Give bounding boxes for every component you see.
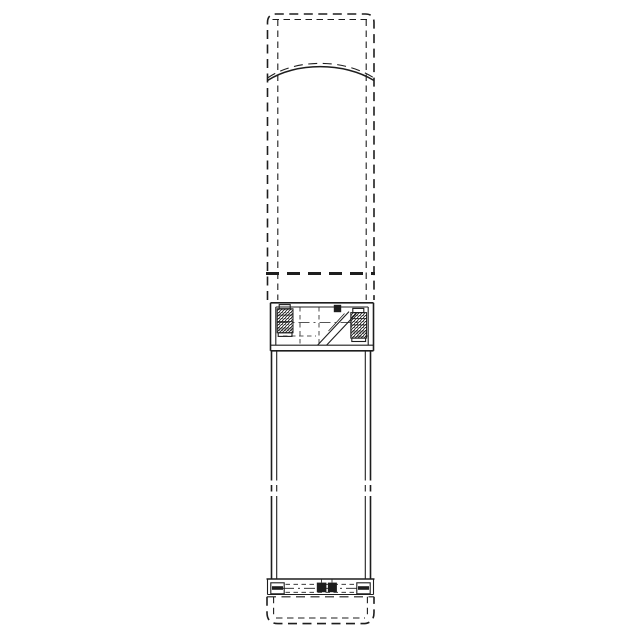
shoulder-arc-hidden xyxy=(268,63,375,78)
cable-guard-lower-edge xyxy=(318,312,350,346)
suction-interconnector-band xyxy=(267,579,375,595)
base-outer-outline xyxy=(267,597,374,624)
pump-outline-drawing xyxy=(0,0,640,640)
base-phantom-outline xyxy=(267,597,374,624)
cable-entry-block-right xyxy=(328,583,337,593)
pump-sleeve-body xyxy=(272,351,371,579)
shoulder-arc xyxy=(268,63,375,80)
upper-housing-phantom-outline xyxy=(268,14,375,300)
right-bolt-cap xyxy=(353,308,364,312)
right-clamp-bolt xyxy=(351,308,367,341)
shoulder-arc-solid xyxy=(268,67,375,81)
outer-phantom-outline xyxy=(268,14,375,300)
left-bolt-base xyxy=(278,333,292,337)
left-clamp-bolt xyxy=(277,305,293,337)
coupling-flange xyxy=(271,303,374,351)
cable-entry-block-left xyxy=(317,583,327,593)
drawing-canvas xyxy=(0,0,640,640)
cable-clamp-block xyxy=(334,305,341,312)
bracket-fill-band xyxy=(272,586,283,590)
left-foot-bracket xyxy=(271,583,284,594)
right-foot-bracket xyxy=(357,583,370,594)
bracket-fill-band xyxy=(358,586,369,590)
right-bolt-base xyxy=(352,338,366,341)
cable-entry-blocks xyxy=(317,579,337,592)
